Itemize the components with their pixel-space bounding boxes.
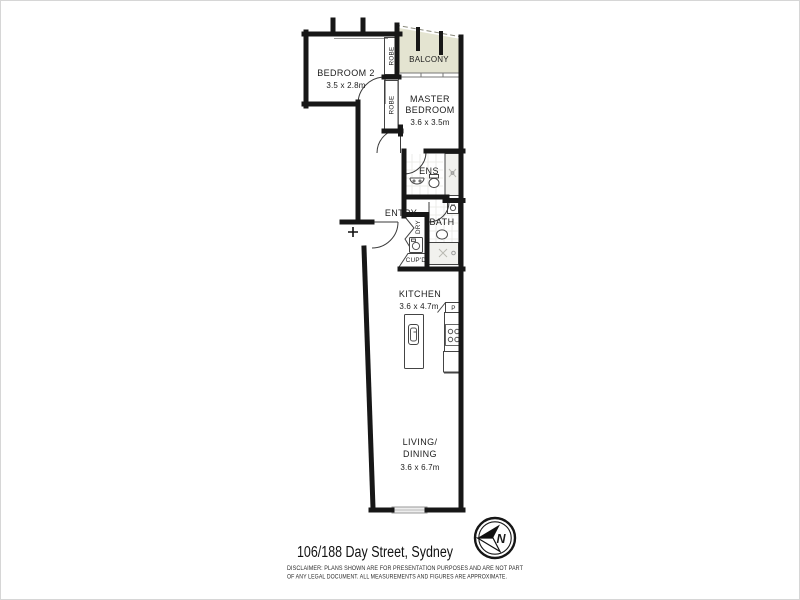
dry-label: DRY <box>415 219 422 234</box>
disclaimer-line1: DISCLAIMER: PLANS SHOWN ARE FOR PRESENTA… <box>287 565 523 572</box>
ens-toilet <box>429 178 439 187</box>
island-sink-bowl <box>411 328 417 341</box>
bath-toilet <box>437 230 448 239</box>
robe-upper-label: ROBE <box>389 46 396 65</box>
floor-plan-page: BEDROOM 2 3.5 x 2.8m BALCONY MASTER BEDR… <box>0 0 800 600</box>
address: 106/188 Day Street, Sydney <box>297 544 453 561</box>
pantry-label: P <box>451 305 456 312</box>
floor-plan: BEDROOM 2 3.5 x 2.8m BALCONY MASTER BEDR… <box>1 1 800 600</box>
kitchen-dims: 3.6 x 4.7m <box>399 302 438 311</box>
left-wall-lower <box>364 248 373 508</box>
living-dining-label-line1: LIVING/ <box>403 437 438 447</box>
compass: N <box>475 518 515 558</box>
cooktop <box>446 325 461 346</box>
compass-north-label: N <box>496 532 506 546</box>
entry-label: ENTRY <box>385 208 417 218</box>
master-bedroom-dims: 3.6 x 3.5m <box>410 118 449 127</box>
master-bedroom-label-line2: BEDROOM <box>405 105 454 115</box>
balcony-slider-window <box>400 73 459 77</box>
kitchen-label: KITCHEN <box>399 289 441 299</box>
entry-marker-icon <box>348 227 358 237</box>
entry-door <box>372 222 398 248</box>
robe-lower-label: ROBE <box>389 95 396 114</box>
living-dining-label-line2: DINING <box>403 449 437 459</box>
disclaimer-line2: OF ANY LEGAL DOCUMENT. ALL MEASUREMENTS … <box>287 574 507 581</box>
bedroom2-label: BEDROOM 2 <box>317 68 375 78</box>
balcony-area <box>395 25 462 77</box>
master-bedroom-label-line1: MASTER <box>410 94 450 104</box>
living-dining-dims: 3.6 x 6.7m <box>400 463 439 472</box>
pantry-door-line <box>438 303 446 313</box>
bedroom2-dims: 3.5 x 2.8m <box>326 81 365 90</box>
cupboard-label: CUP'D <box>406 257 427 264</box>
bath-label: BATH <box>430 217 455 227</box>
ensuite-label: ENS <box>419 166 439 176</box>
balcony-label: BALCONY <box>409 55 449 64</box>
